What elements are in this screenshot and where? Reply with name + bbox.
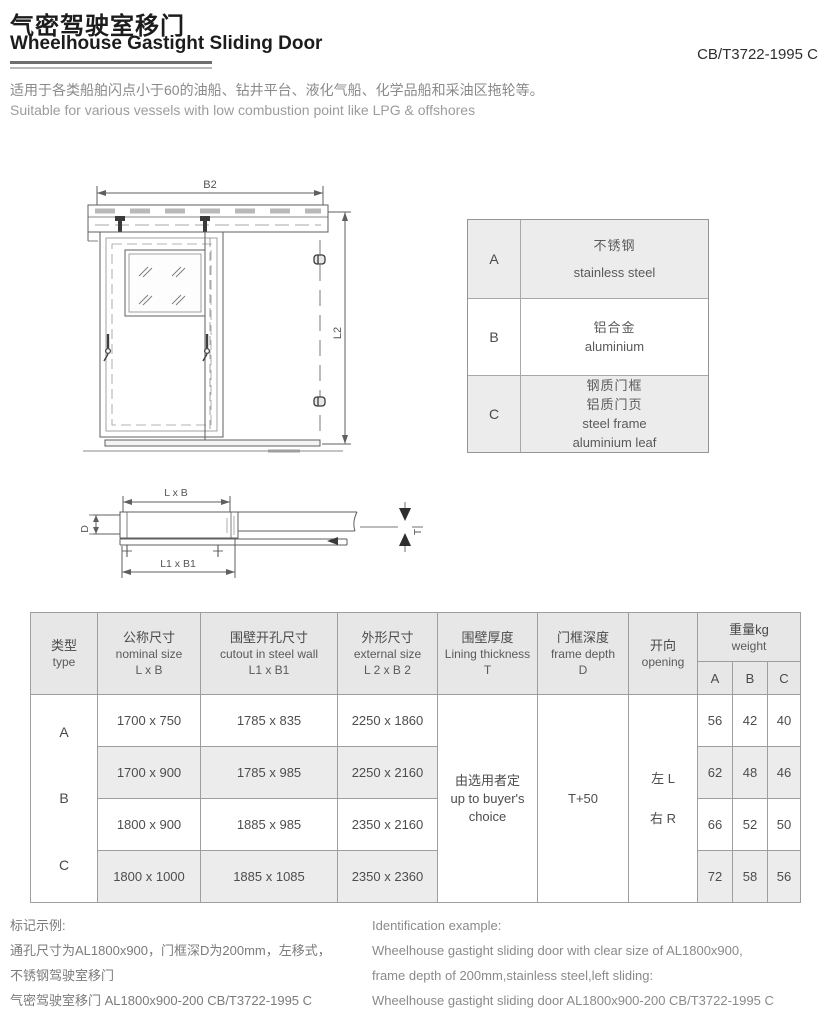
nominal-size-cell: 1700 x 750 — [98, 695, 201, 747]
material-description: 不锈钢 stainless steel — [521, 220, 708, 298]
header-text: weight — [698, 638, 800, 654]
header-text: opening — [629, 654, 697, 670]
material-type-label: A — [468, 220, 521, 298]
weight-b-cell: 48 — [733, 747, 768, 799]
dim-label-t: T — [412, 528, 424, 535]
material-row-a: A 不锈钢 stainless steel — [468, 220, 708, 299]
material-description: 钢质门框 铝质门页 steel frame aluminium leaf — [521, 376, 708, 452]
track-bolts — [122, 545, 223, 557]
external-size-cell: 2350 x 2360 — [338, 851, 438, 903]
header-text: nominal size — [98, 646, 200, 662]
nominal-size-cell: 1800 x 1000 — [98, 851, 201, 903]
header-text: L x B — [98, 662, 200, 678]
cell-text: 右 R — [629, 810, 697, 828]
cell-text: choice — [438, 808, 537, 826]
front-view-drawing: B2 — [83, 179, 351, 451]
col-header-frame-depth: 门框深度 frame depth D — [538, 613, 629, 695]
material-text: 钢质门框 — [586, 376, 642, 395]
example-line: 气密驾驶室移门 AL1800x900-200 CB/T3722-1995 C — [10, 988, 370, 1013]
example-line: Wheelhouse gastight sliding door AL1800x… — [372, 988, 824, 1013]
cutout-size-cell: 1785 x 835 — [201, 695, 338, 747]
wall-opening-edge — [314, 240, 325, 437]
example-english-block: Identification example: Wheelhouse gasti… — [372, 913, 824, 1013]
header-text: 公称尺寸 — [98, 629, 200, 646]
nominal-size-cell: 1700 x 900 — [98, 747, 201, 799]
spec-row-1: A B C 1700 x 750 1785 x 835 2250 x 1860 … — [31, 695, 801, 747]
material-text: 铝合金 — [593, 318, 635, 337]
header-text: 重量kg — [698, 621, 800, 638]
col-header-weight: 重量kg weight — [698, 613, 801, 662]
frame-section — [120, 512, 238, 538]
material-text: 铝质门页 — [586, 395, 642, 414]
nominal-size-cell: 1800 x 900 — [98, 799, 201, 851]
external-size-cell: 2250 x 2160 — [338, 747, 438, 799]
door-window — [125, 250, 205, 316]
dim-label-b2: B2 — [203, 179, 216, 191]
header-text: L1 x B1 — [201, 662, 337, 678]
type-letter: A — [31, 724, 97, 740]
col-header-weight-c: C — [768, 662, 801, 695]
weight-c-cell: 50 — [768, 799, 801, 851]
material-text: 不锈钢 — [593, 236, 635, 255]
dim-label-d: D — [79, 525, 91, 533]
col-header-external-size: 外形尺寸 external size L 2 x B 2 — [338, 613, 438, 695]
weight-b-cell: 42 — [733, 695, 768, 747]
col-header-cutout-size: 围壁开孔尺寸 cutout in steel wall L1 x B1 — [201, 613, 338, 695]
sliding-leaf-open — [238, 512, 398, 531]
example-line: 通孔尺寸为AL1800x900，门框深D为200mm，左移式， — [10, 938, 370, 963]
frame-depth-cell: T+50 — [538, 695, 629, 903]
dim-label-l1xb1: L1 x B1 — [160, 558, 196, 570]
header-text: type — [31, 654, 97, 670]
weight-a-cell: 56 — [698, 695, 733, 747]
col-header-nominal-size: 公称尺寸 nominal size L x B — [98, 613, 201, 695]
header-text: cutout in steel wall — [201, 646, 337, 662]
col-header-opening: 开向 opening — [629, 613, 698, 695]
header-text: 外形尺寸 — [338, 629, 437, 646]
header-text: T — [438, 662, 537, 678]
opening-cell: 左 L 右 R — [629, 695, 698, 903]
external-size-cell: 2350 x 2160 — [338, 799, 438, 851]
weight-a-cell: 66 — [698, 799, 733, 851]
lining-thickness-cell: 由选用者定 up to buyer's choice — [438, 695, 538, 903]
material-type-label: B — [468, 299, 521, 375]
material-description: 铝合金 aluminium — [521, 299, 708, 375]
cell-text: 由选用者定 — [438, 772, 537, 790]
col-header-lining-thickness: 围壁厚度 Lining thickness T — [438, 613, 538, 695]
header-text: frame depth — [538, 646, 628, 662]
spec-table-wrapper: 类型 type 公称尺寸 nominal size L x B 围壁开孔尺寸 c… — [30, 612, 800, 903]
header-text: D — [538, 662, 628, 678]
header-text: 门框深度 — [538, 629, 628, 646]
example-line: Wheelhouse gastight sliding door with cl… — [372, 938, 824, 963]
material-text: aluminium — [585, 337, 644, 356]
header-text: L 2 x B 2 — [338, 662, 437, 678]
dim-label-l2: L2 — [332, 327, 344, 339]
weight-b-cell: 52 — [733, 799, 768, 851]
material-text: aluminium leaf — [573, 433, 657, 452]
external-size-cell: 2250 x 1860 — [338, 695, 438, 747]
door-sill — [83, 440, 343, 451]
type-letter: B — [31, 790, 97, 806]
material-row-c: C 钢质门框 铝质门页 steel frame aluminium leaf — [468, 376, 708, 452]
wall-thickness-marker — [399, 502, 423, 552]
example-line: 不锈钢驾驶室移门 — [10, 963, 370, 988]
dim-label-lxb: L x B — [164, 487, 188, 499]
cell-text: up to buyer's — [438, 790, 537, 808]
weight-c-cell: 40 — [768, 695, 801, 747]
material-text: stainless steel — [574, 263, 656, 282]
dimension-d — [89, 515, 104, 534]
material-row-b: B 铝合金 aluminium — [468, 299, 708, 376]
header-text: Lining thickness — [438, 646, 537, 662]
catalog-page: { "page": { "title_zh": "气密驾驶室移门", "titl… — [0, 0, 830, 1028]
type-letters-cell: A B C — [31, 695, 98, 903]
weight-a-cell: 62 — [698, 747, 733, 799]
cell-text: 左 L — [629, 770, 697, 788]
header-text: 围壁厚度 — [438, 629, 537, 646]
material-table: A 不锈钢 stainless steel B 铝合金 aluminium C … — [467, 219, 709, 453]
lower-track — [120, 537, 347, 557]
example-line: 标记示例: — [10, 913, 370, 938]
header-text: 类型 — [31, 637, 97, 654]
cutout-size-cell: 1785 x 985 — [201, 747, 338, 799]
example-line: Identification example: — [372, 913, 824, 938]
header-text: external size — [338, 646, 437, 662]
material-type-label: C — [468, 376, 521, 452]
track-leader-arrow — [327, 537, 338, 545]
material-text: steel frame — [582, 414, 646, 433]
spec-table: 类型 type 公称尺寸 nominal size L x B 围壁开孔尺寸 c… — [30, 612, 801, 903]
cutout-size-cell: 1885 x 985 — [201, 799, 338, 851]
header-text: 开向 — [629, 637, 697, 654]
col-header-weight-b: B — [733, 662, 768, 695]
weight-a-cell: 72 — [698, 851, 733, 903]
cutout-size-cell: 1885 x 1085 — [201, 851, 338, 903]
weight-c-cell: 46 — [768, 747, 801, 799]
type-letter: C — [31, 857, 97, 873]
example-line: frame depth of 200mm,stainless steel,lef… — [372, 963, 824, 988]
col-header-type: 类型 type — [31, 613, 98, 695]
weight-c-cell: 56 — [768, 851, 801, 903]
col-header-weight-a: A — [698, 662, 733, 695]
header-text: 围壁开孔尺寸 — [201, 629, 337, 646]
weight-b-cell: 58 — [733, 851, 768, 903]
example-chinese-block: 标记示例: 通孔尺寸为AL1800x900，门框深D为200mm，左移式， 不锈… — [10, 913, 370, 1013]
plan-view-drawing: L x B D — [79, 487, 424, 578]
